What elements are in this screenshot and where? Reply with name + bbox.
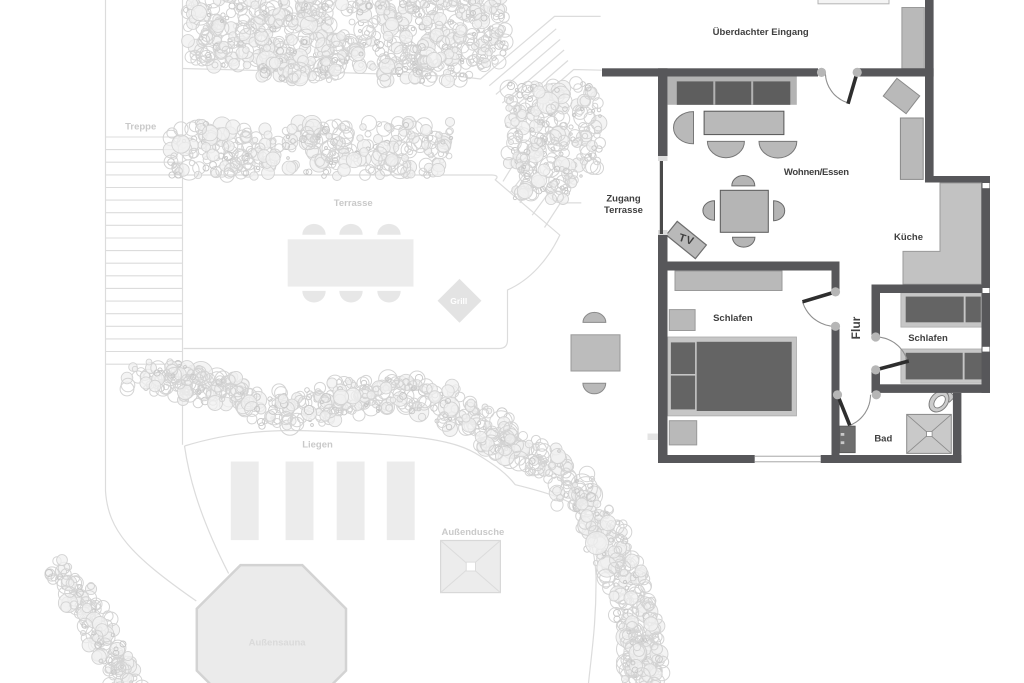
svg-text:Schlafen: Schlafen (908, 333, 948, 344)
svg-text:Zugang: Zugang (606, 194, 640, 205)
svg-text:Küche: Küche (894, 232, 923, 243)
svg-text:Wohnen/Essen: Wohnen/Essen (784, 167, 849, 178)
svg-text:Bad: Bad (874, 433, 892, 444)
svg-text:Grill: Grill (450, 296, 467, 306)
svg-text:Schlafen: Schlafen (713, 313, 753, 324)
svg-text:Überdachter Eingang: Überdachter Eingang (713, 27, 809, 38)
svg-text:Flur: Flur (849, 316, 863, 339)
svg-text:Außensauna: Außensauna (249, 638, 307, 649)
svg-text:Außendusche: Außendusche (441, 527, 504, 538)
svg-text:Liegen: Liegen (302, 440, 333, 451)
svg-text:Terrasse: Terrasse (334, 198, 373, 209)
svg-text:Terrasse: Terrasse (604, 205, 643, 216)
svg-text:Treppe: Treppe (125, 122, 156, 133)
